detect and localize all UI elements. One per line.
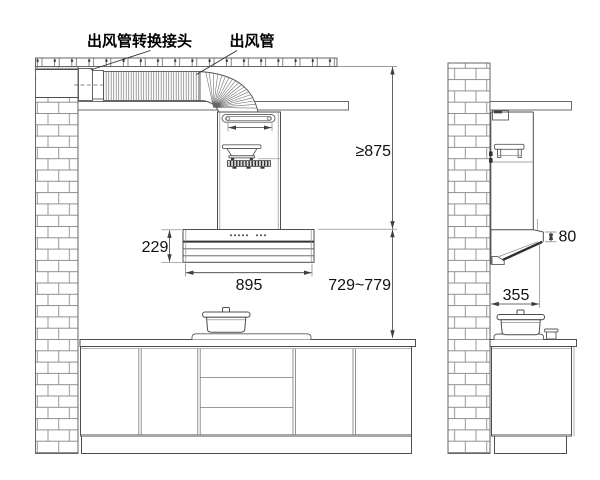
countertop-front [80, 340, 416, 347]
chimney-side [489, 112, 537, 230]
chimney-front [218, 112, 281, 230]
installation-diagram: ≥875 729~779 229 895 80 355 出风管转换接头 出风管 [0, 0, 600, 480]
burner-knob-side [547, 332, 557, 339]
flexible-duct [104, 72, 201, 101]
shelf-side [490, 102, 572, 111]
ceiling-board [36, 58, 338, 67]
callout-duct: 出风管 [197, 32, 275, 75]
dim-label-80: 80 [559, 229, 577, 246]
cabinet-front [81, 347, 412, 454]
hood-bottom-lip [492, 256, 504, 264]
cabinet-base-side [495, 436, 567, 454]
wall-bracket [489, 152, 493, 157]
hood-side [490, 230, 543, 265]
wall-left [36, 67, 79, 454]
dimension-hood-height: 229 [142, 230, 182, 262]
duct-adapter [74, 69, 108, 101]
chimney-vent-slot [222, 115, 275, 123]
countertop-side [490, 340, 577, 347]
dim-label-729-779: 729~779 [328, 277, 391, 294]
dimension-ceiling-to-hood-top: ≥875 [318, 67, 397, 230]
diagram-svg: ≥875 729~779 229 895 80 355 出风管转换接头 出风管 [0, 0, 600, 480]
pot-front [203, 308, 251, 333]
cabinet-side [492, 347, 575, 454]
damper-side [495, 144, 525, 157]
burner-knob-side [545, 329, 559, 332]
dim-label-229: 229 [142, 239, 169, 256]
duct-adapter-label: 出风管转换接头 [87, 32, 192, 50]
duct-label: 出风管 [230, 32, 275, 50]
dim-label-895: 895 [236, 277, 263, 294]
wall-bracket [489, 158, 493, 163]
hood-front [183, 230, 314, 263]
dimension-hood-front-edge: 80 [545, 229, 576, 246]
pot-side [497, 310, 545, 335]
wall-right [448, 63, 490, 454]
wall-duct-opening [36, 70, 77, 97]
cooktop-front [192, 334, 311, 340]
cabinet-base-front [82, 436, 412, 454]
vent-grille-bar [228, 161, 271, 169]
dimension-hood-width: 895 [186, 264, 313, 295]
hood-slope [503, 242, 542, 260]
dim-label-ge875: ≥875 [356, 143, 392, 160]
dimension-hood-top-to-countertop: 729~779 [328, 230, 392, 338]
dim-label-355: 355 [503, 287, 530, 304]
